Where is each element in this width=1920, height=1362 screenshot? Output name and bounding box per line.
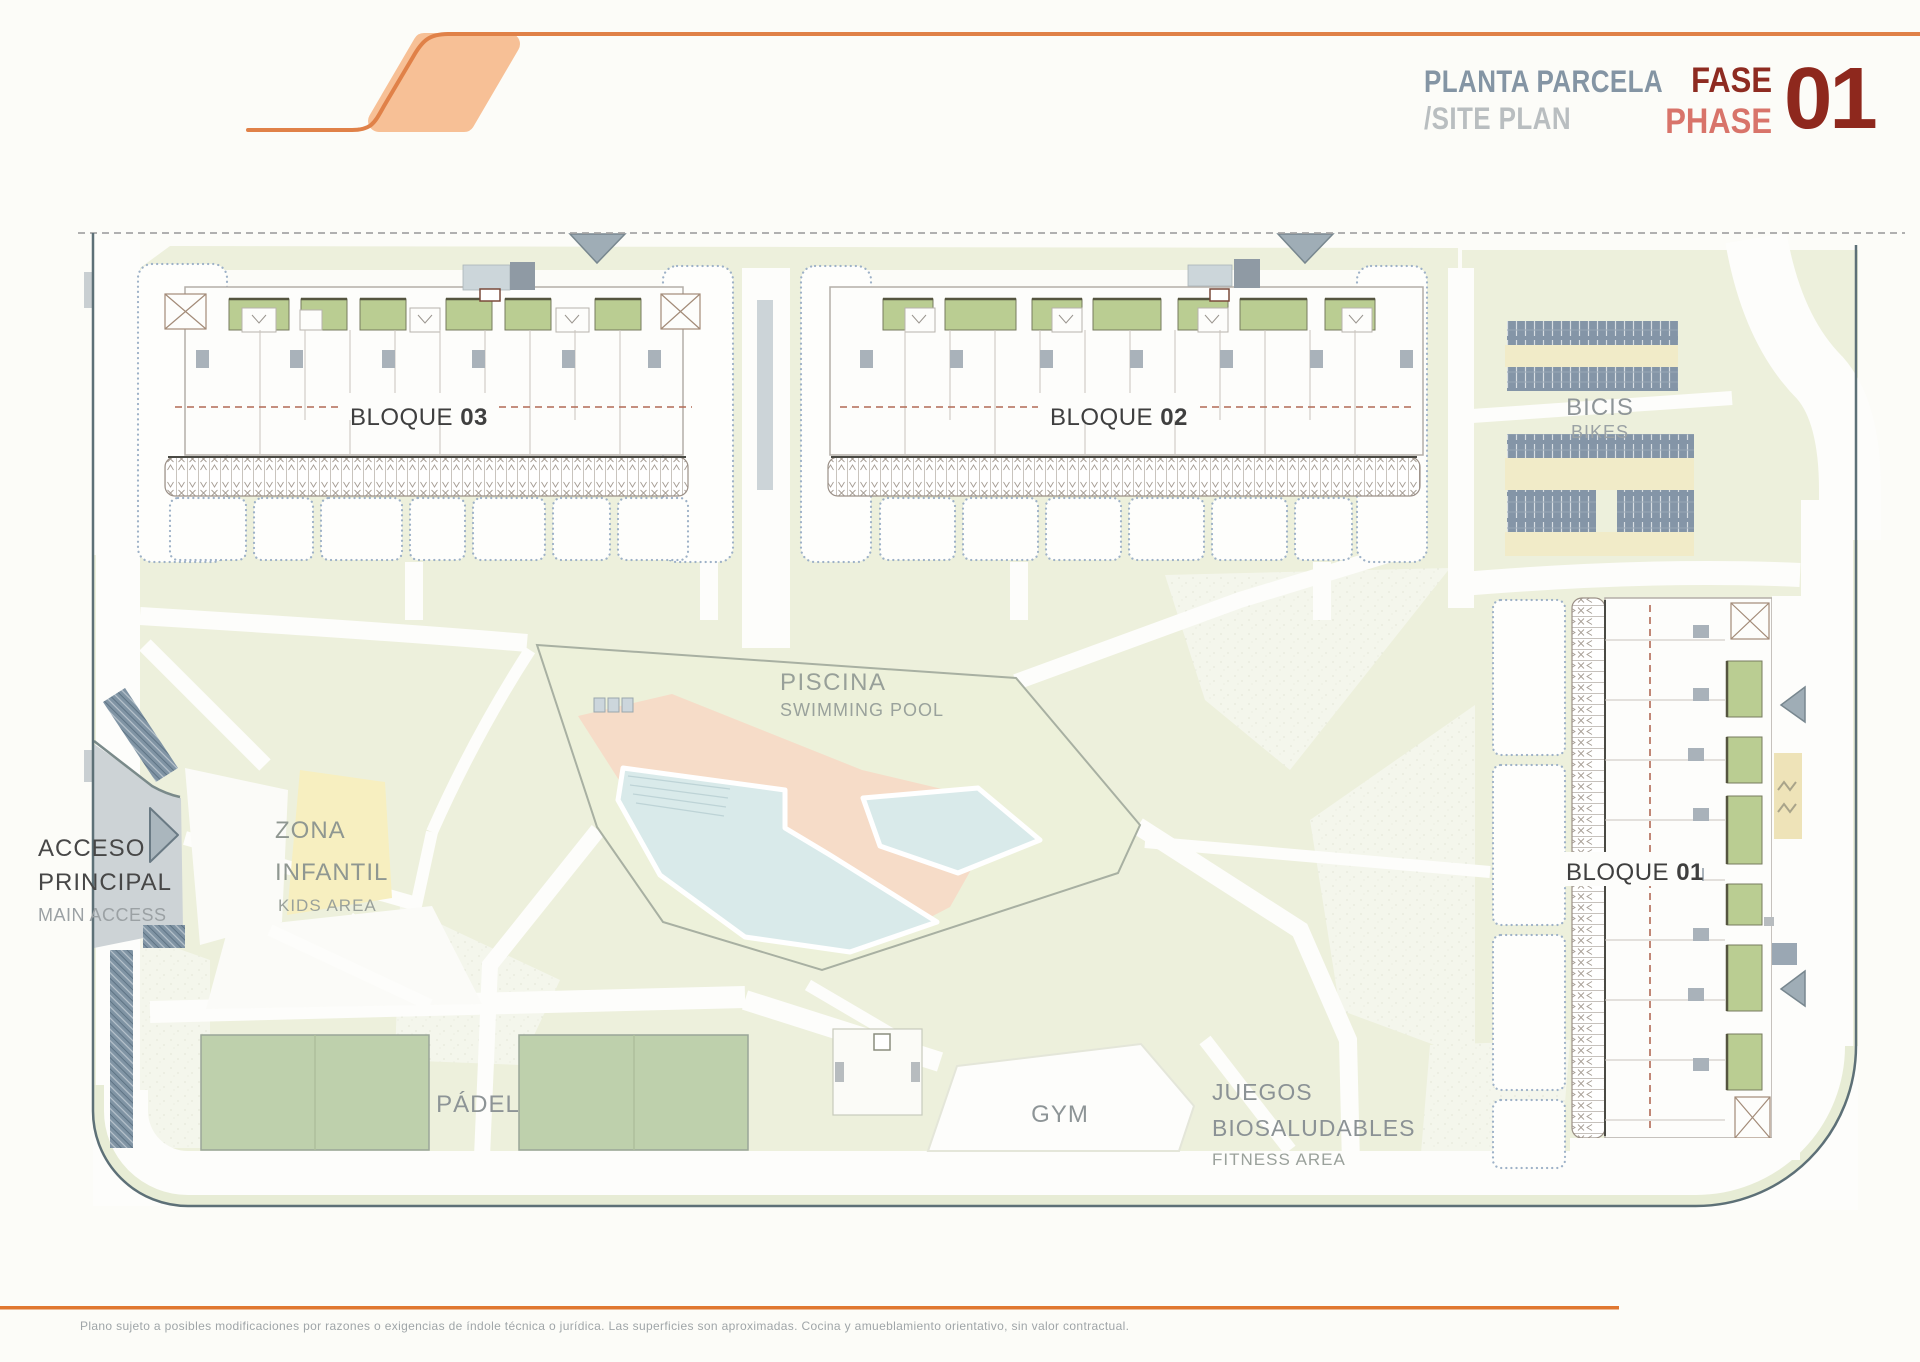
svg-text:JUEGOS: JUEGOS (1212, 1079, 1313, 1105)
svg-text:FITNESS AREA: FITNESS AREA (1212, 1150, 1346, 1169)
svg-text:01: 01 (1784, 50, 1875, 147)
svg-text:BICIS: BICIS (1566, 394, 1634, 421)
svg-text:FASE: FASE (1691, 61, 1772, 100)
svg-text:PRINCIPAL: PRINCIPAL (38, 869, 172, 896)
svg-text:ZONA: ZONA (275, 817, 346, 844)
svg-text:BLOQUE 02: BLOQUE 02 (1050, 404, 1188, 431)
svg-text:BLOQUE 03: BLOQUE 03 (350, 404, 488, 431)
svg-text:INFANTIL: INFANTIL (275, 859, 388, 886)
svg-text:KIDS AREA: KIDS AREA (278, 896, 377, 915)
svg-text:BIOSALUDABLES: BIOSALUDABLES (1212, 1115, 1415, 1141)
svg-text:ACCESO: ACCESO (38, 835, 145, 862)
svg-text:PISCINA: PISCINA (780, 669, 887, 696)
svg-text:GYM: GYM (1031, 1101, 1089, 1128)
svg-text:PLANTA PARCELA: PLANTA PARCELA (1424, 65, 1663, 100)
svg-text:/SITE PLAN: /SITE PLAN (1424, 102, 1571, 137)
svg-text:MAIN ACCESS: MAIN ACCESS (38, 905, 167, 925)
svg-text:SWIMMING POOL: SWIMMING POOL (780, 700, 944, 720)
svg-text:BLOQUE 01: BLOQUE 01 (1566, 859, 1704, 886)
svg-text:BIKES: BIKES (1571, 422, 1629, 442)
svg-text:PÁDEL: PÁDEL (436, 1091, 520, 1118)
svg-text:Plano sujeto a posibles modifi: Plano sujeto a posibles modificaciones p… (80, 1319, 1129, 1333)
svg-text:PHASE: PHASE (1665, 102, 1772, 141)
